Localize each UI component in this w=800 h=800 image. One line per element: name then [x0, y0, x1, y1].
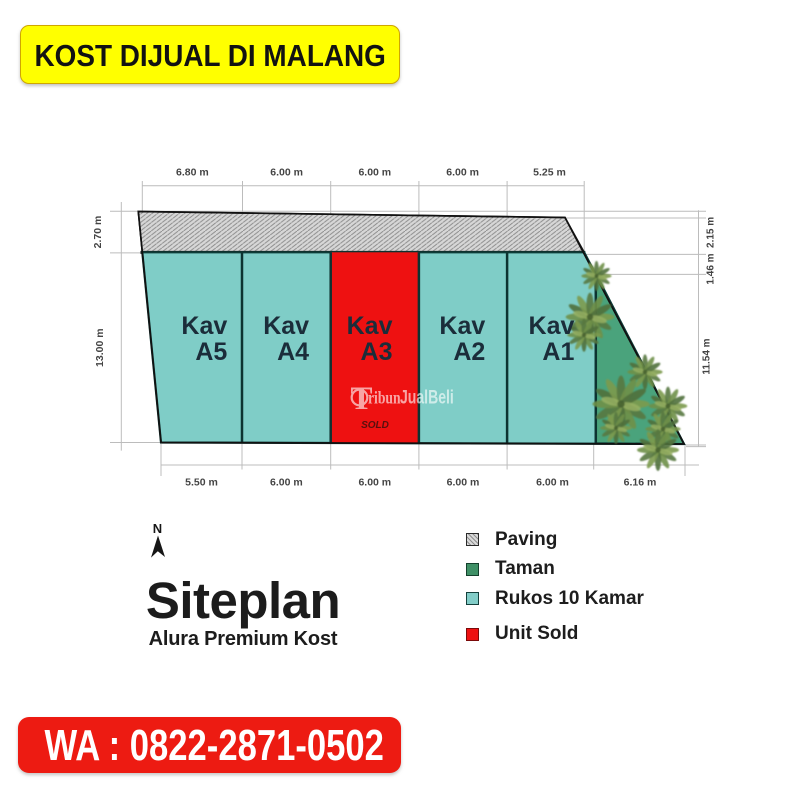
svg-text:A5: A5: [195, 338, 227, 366]
svg-text:13.00 m: 13.00 m: [94, 328, 106, 367]
svg-text:SOLD: SOLD: [361, 420, 389, 431]
svg-text:Kav: Kav: [263, 312, 309, 340]
svg-text:Kav: Kav: [181, 312, 227, 340]
svg-text:6.00 m: 6.00 m: [447, 477, 480, 489]
svg-text:5.25 m: 5.25 m: [533, 167, 566, 179]
svg-text:2.15 m: 2.15 m: [706, 217, 717, 248]
svg-text:6.00 m: 6.00 m: [358, 167, 391, 179]
svg-text:6.00 m: 6.00 m: [270, 167, 303, 179]
svg-text:6.00 m: 6.00 m: [536, 477, 569, 489]
svg-text:A1: A1: [542, 338, 574, 366]
svg-text:Kav: Kav: [439, 312, 485, 340]
svg-text:A3: A3: [361, 338, 393, 366]
svg-text:6.16 m: 6.16 m: [624, 477, 657, 489]
svg-text:2.70 m: 2.70 m: [92, 216, 104, 249]
svg-text:6.00 m: 6.00 m: [446, 167, 479, 179]
svg-text:Kav: Kav: [347, 312, 393, 340]
svg-text:5.50 m: 5.50 m: [185, 477, 218, 489]
svg-text:ribun: ribun: [368, 389, 401, 408]
svg-text:1.46 m: 1.46 m: [706, 253, 717, 284]
svg-text:6.80 m: 6.80 m: [176, 167, 209, 179]
svg-text:6.00 m: 6.00 m: [358, 477, 391, 489]
svg-text:A4: A4: [277, 338, 309, 366]
svg-text:Kav: Kav: [529, 312, 575, 340]
svg-text:6.00 m: 6.00 m: [270, 477, 303, 489]
svg-text:JualBeli: JualBeli: [400, 386, 454, 408]
svg-text:A2: A2: [453, 338, 485, 366]
svg-text:11.54 m: 11.54 m: [701, 338, 712, 374]
